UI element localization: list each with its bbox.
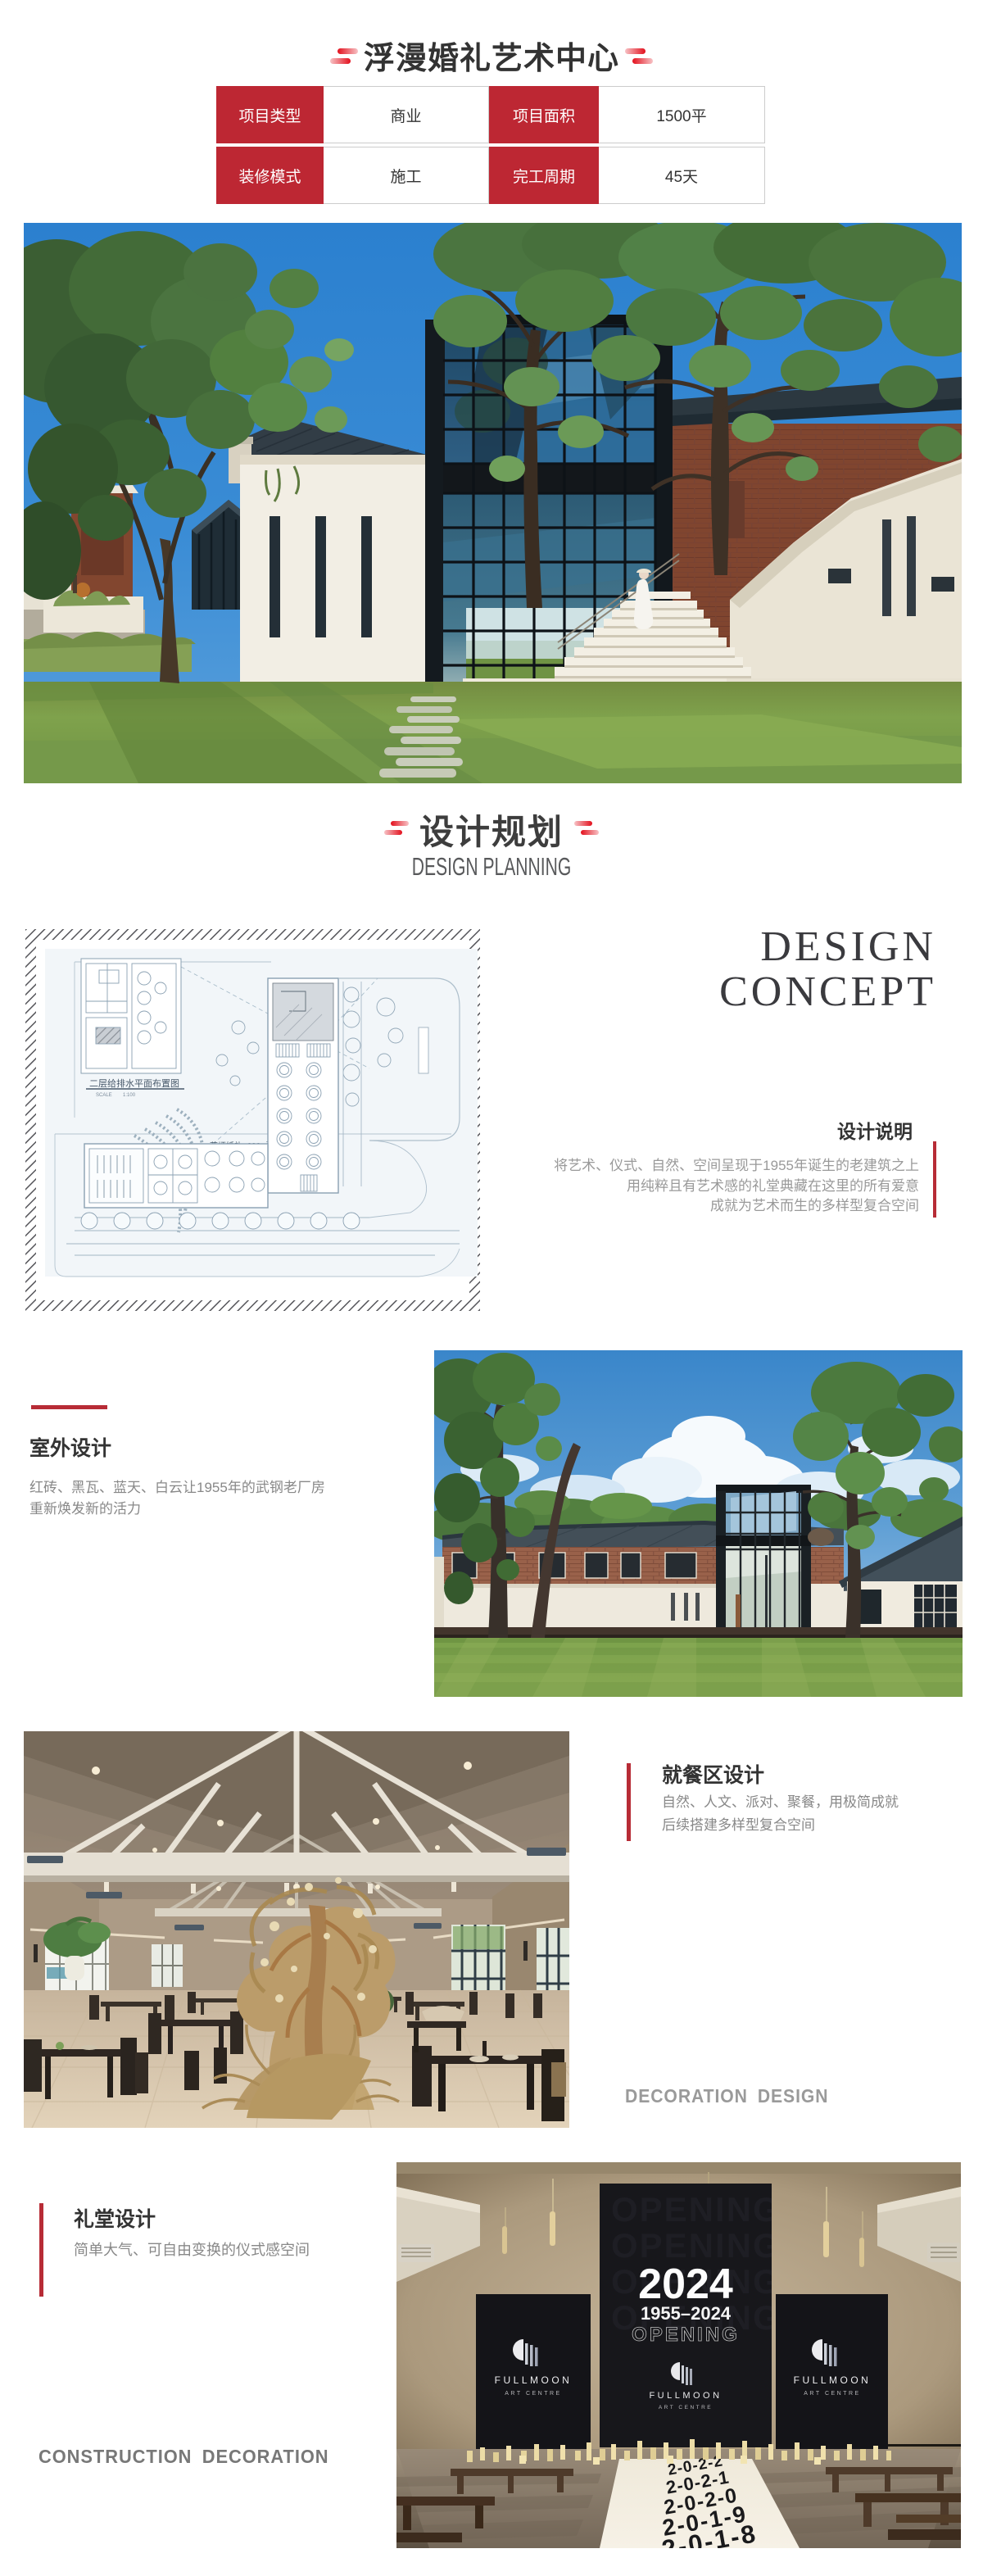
svg-text:2024: 2024 xyxy=(638,2261,733,2308)
svg-text:FULLMOON: FULLMOON xyxy=(495,2374,573,2386)
svg-text:OPENING: OPENING xyxy=(632,2324,740,2346)
svg-text:二层给排水平面布置图: 二层给排水平面布置图 xyxy=(89,1077,179,1089)
svg-text:FULLMOON: FULLMOON xyxy=(794,2374,872,2386)
svg-text:ART CENTRE: ART CENTRE xyxy=(505,2391,561,2397)
svg-text:ART CENTRE: ART CENTRE xyxy=(659,2405,713,2410)
svg-text:SCALE 1:100: SCALE 1:100 xyxy=(96,1093,136,1098)
svg-text:OPENING: OPENING xyxy=(611,2190,781,2229)
svg-text:FULLMOON: FULLMOON xyxy=(649,2391,722,2401)
svg-text:1955–2024: 1955–2024 xyxy=(641,2303,732,2324)
svg-text:OPENING: OPENING xyxy=(611,2226,781,2265)
svg-text:ART CENTRE: ART CENTRE xyxy=(804,2391,860,2397)
